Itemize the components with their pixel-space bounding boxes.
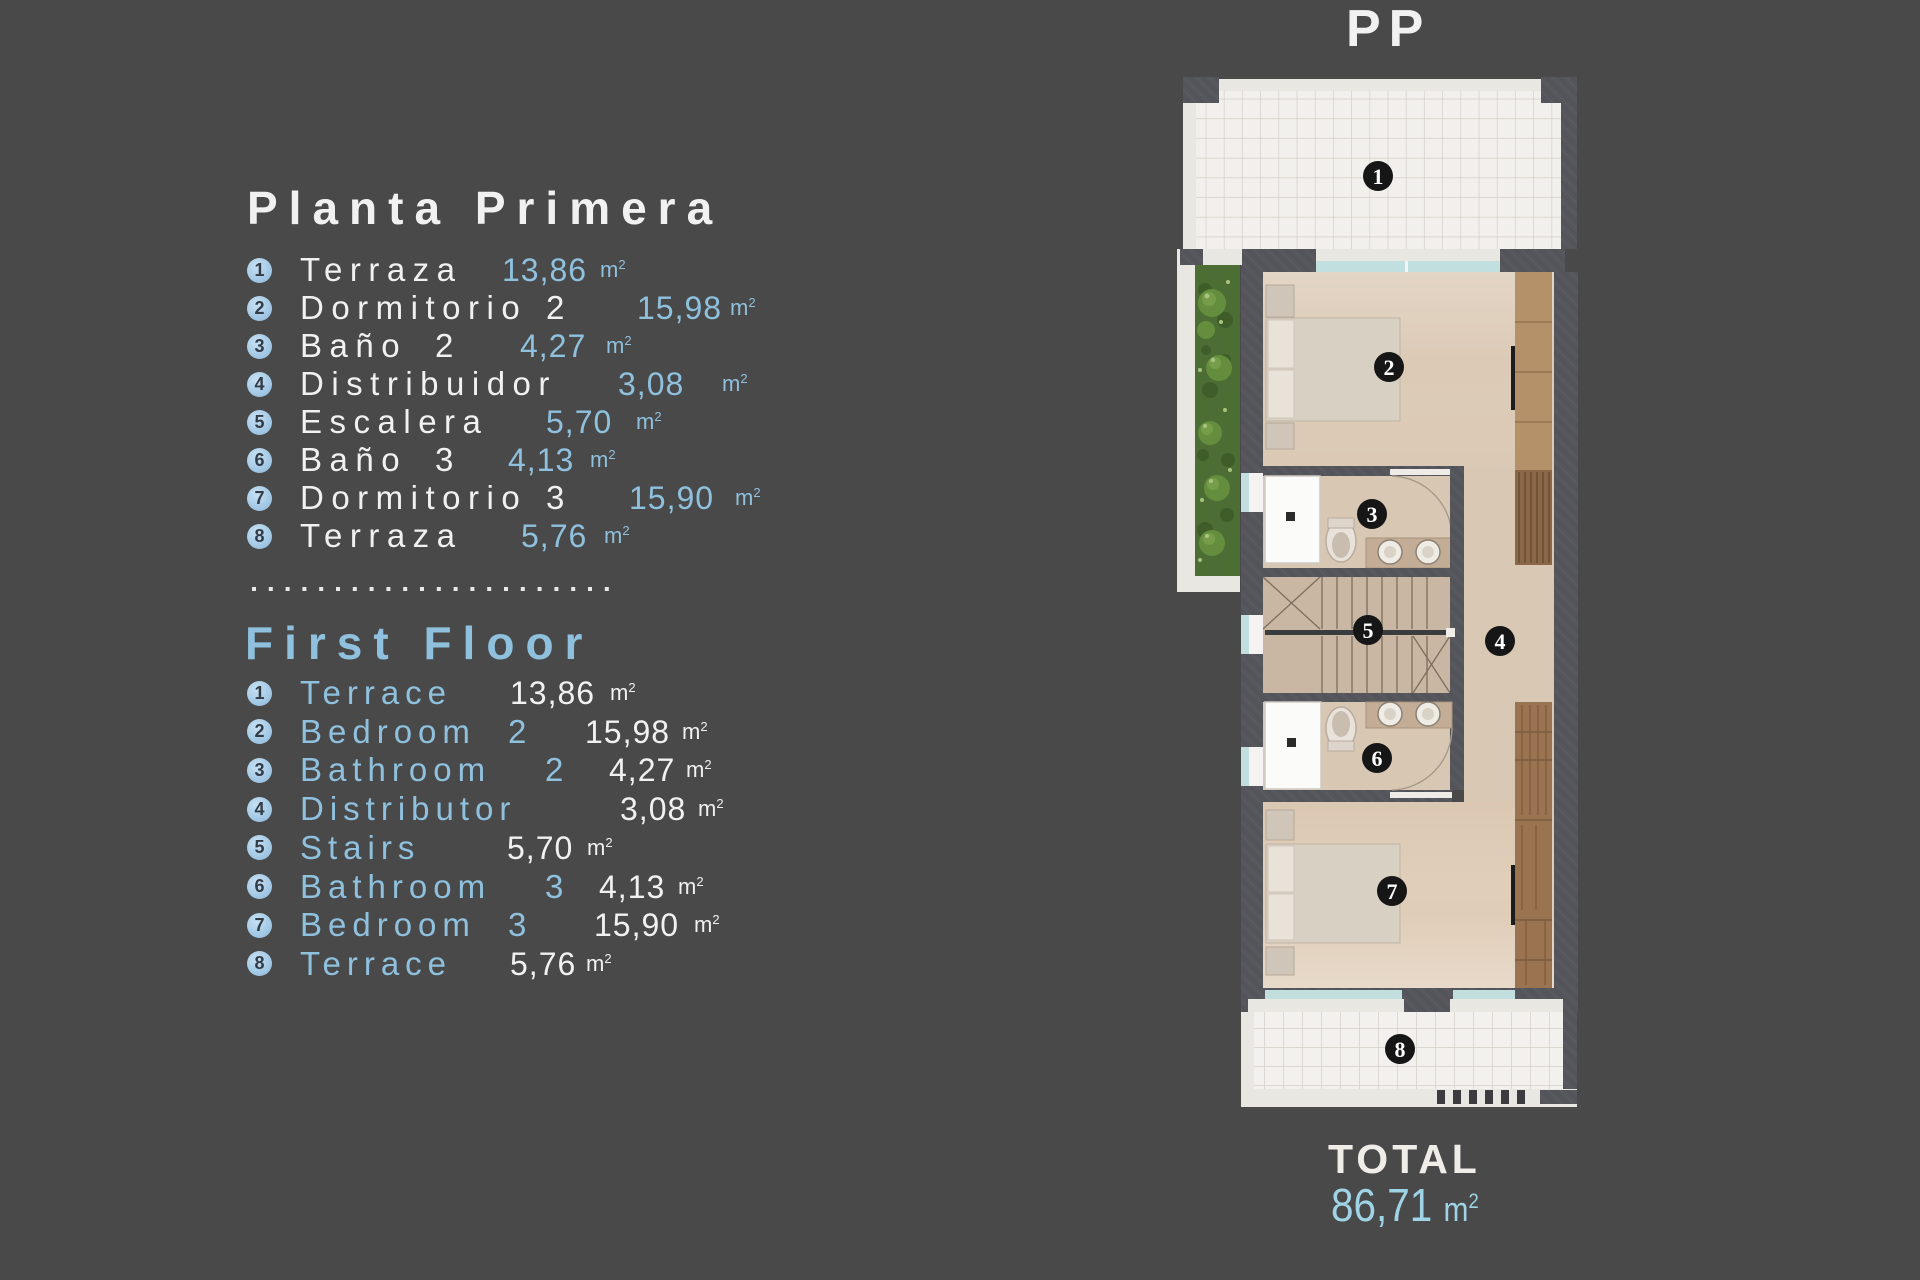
svg-text:8: 8 <box>1395 1037 1406 1062</box>
svg-text:2: 2 <box>1384 355 1395 380</box>
svg-text:7: 7 <box>1387 879 1398 904</box>
svg-text:1: 1 <box>1373 164 1384 189</box>
svg-text:6: 6 <box>1372 746 1383 771</box>
svg-text:3: 3 <box>1367 502 1378 527</box>
svg-text:4: 4 <box>1495 629 1506 654</box>
svg-text:5: 5 <box>1363 618 1374 643</box>
